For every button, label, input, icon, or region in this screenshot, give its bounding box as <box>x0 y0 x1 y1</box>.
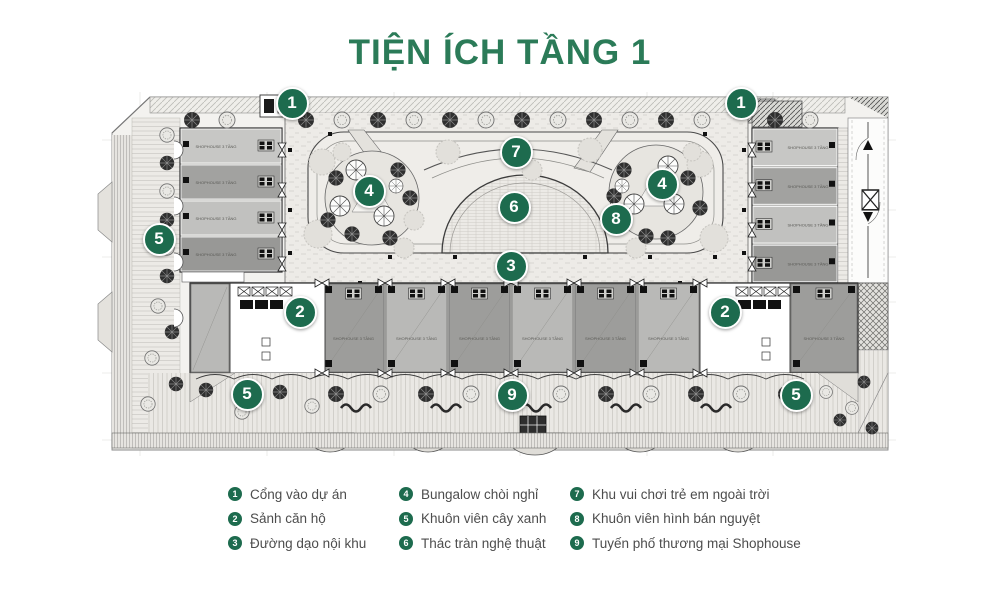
unit-label: SHOPHOUSE 3 TẦNG <box>787 145 828 150</box>
legend: 1Cổng vào dự án2Sảnh căn hộ3Đường dạo nộ… <box>228 482 830 556</box>
legend-bullet: 7 <box>570 487 584 501</box>
unit-label: SHOPHOUSE 3 TẦNG <box>195 252 236 257</box>
legend-column: 1Cổng vào dự án2Sảnh căn hộ3Đường dạo nộ… <box>228 482 399 556</box>
legend-item-label: Khu vui chơi trẻ em ngoài trời <box>592 487 770 502</box>
legend-item-label: Bungalow chòi nghỉ <box>421 487 538 502</box>
legend-item-label: Khuôn viên cây xanh <box>421 511 546 526</box>
legend-bullet: 3 <box>228 536 242 550</box>
legend-column: 4Bungalow chòi nghỉ5Khuôn viên cây xanh6… <box>399 482 570 556</box>
legend-item-5: 5Khuôn viên cây xanh <box>399 507 570 532</box>
legend-bullet: 1 <box>228 487 242 501</box>
legend-bullet: 4 <box>399 487 413 501</box>
legend-item-4: 4Bungalow chòi nghỉ <box>399 482 570 507</box>
unit-label: SHOPHOUSE 3 TẦNG <box>787 184 828 189</box>
lobby-core-right <box>700 283 790 373</box>
unit-label: SHOPHOUSE 3 TẦNG <box>195 216 236 221</box>
lobby-core-left <box>230 283 325 373</box>
legend-bullet: 6 <box>399 536 413 550</box>
unit-label: SHOPHOUSE 3 TẦNG <box>787 261 828 266</box>
legend-item-2: 2Sảnh căn hộ <box>228 507 399 532</box>
legend-item-label: Thác tràn nghệ thuật <box>421 536 546 551</box>
unit-label: SHOPHOUSE 3 TẦNG <box>522 336 563 341</box>
unit-label: SHOPHOUSE 3 TẦNG <box>787 223 828 228</box>
legend-item-7: 7Khu vui chơi trẻ em ngoài trời <box>570 482 830 507</box>
legend-item-1: 1Cổng vào dự án <box>228 482 399 507</box>
legend-bullet: 2 <box>228 512 242 526</box>
unit-label: SHOPHOUSE 3 TẦNG <box>333 336 374 341</box>
unit-label: SHOPHOUSE 3 TẦNG <box>648 336 689 341</box>
legend-item-3: 3Đường dạo nội khu <box>228 531 399 556</box>
unit-label: SHOPHOUSE 3 TẦNG <box>803 336 844 341</box>
legend-item-label: Sảnh căn hộ <box>250 511 326 526</box>
legend-item-9: 9Tuyến phố thương mại Shophouse <box>570 531 830 556</box>
legend-bullet: 5 <box>399 512 413 526</box>
legend-bullet: 8 <box>570 512 584 526</box>
unit-label: SHOPHOUSE 3 TẦNG <box>459 336 500 341</box>
unit-label: SHOPHOUSE 3 TẦNG <box>396 336 437 341</box>
legend-item-label: Đường dạo nội khu <box>250 536 366 551</box>
legend-item-label: Cổng vào dự án <box>250 487 347 502</box>
legend-bullet: 9 <box>570 536 584 550</box>
unit-label: SHOPHOUSE 3 TẦNG <box>195 144 236 149</box>
legend-item-label: Khuôn viên hình bán nguyệt <box>592 511 760 526</box>
shophouse-row-bottom <box>190 283 858 373</box>
unit-label: SHOPHOUSE 3 TẦNG <box>585 336 626 341</box>
legend-item-label: Tuyến phố thương mại Shophouse <box>592 536 801 551</box>
central-courtyard <box>285 113 748 285</box>
legend-item-6: 6Thác tràn nghệ thuật <box>399 531 570 556</box>
legend-item-8: 8Khuôn viên hình bán nguyệt <box>570 507 830 532</box>
legend-column: 7Khu vui chơi trẻ em ngoài trời8Khuôn vi… <box>570 482 830 556</box>
amenities-floorplan-page: TIỆN ÍCH TẦNG 1 <box>0 0 1000 600</box>
unit-label: SHOPHOUSE 3 TẦNG <box>195 180 236 185</box>
bottom-promenade <box>112 433 888 448</box>
